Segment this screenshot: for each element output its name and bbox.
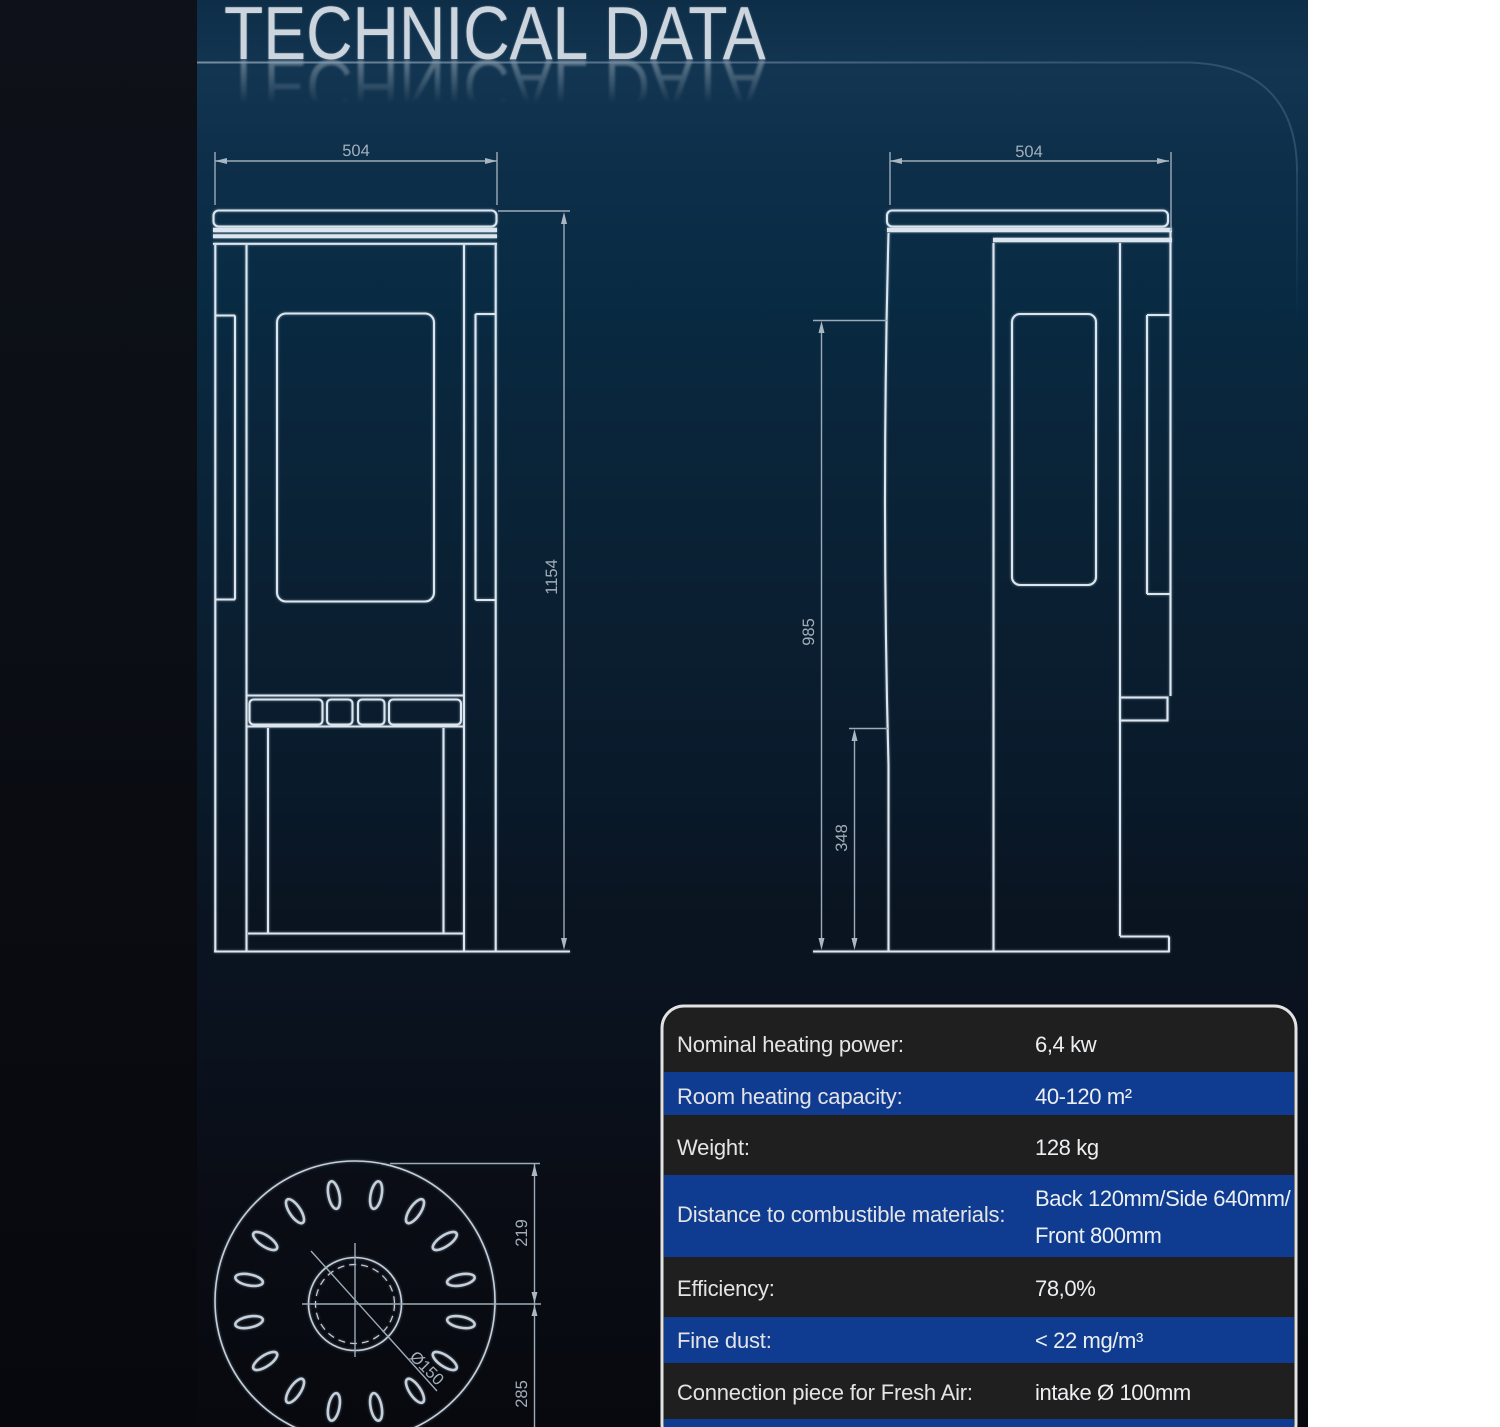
svg-text:985: 985 bbox=[800, 618, 818, 646]
svg-text:348: 348 bbox=[833, 824, 851, 852]
svg-text:504: 504 bbox=[342, 142, 370, 160]
svg-text:504: 504 bbox=[1015, 143, 1043, 161]
svg-text:285: 285 bbox=[513, 1380, 531, 1408]
svg-text:1154: 1154 bbox=[543, 559, 561, 594]
svg-text:219: 219 bbox=[513, 1219, 531, 1247]
